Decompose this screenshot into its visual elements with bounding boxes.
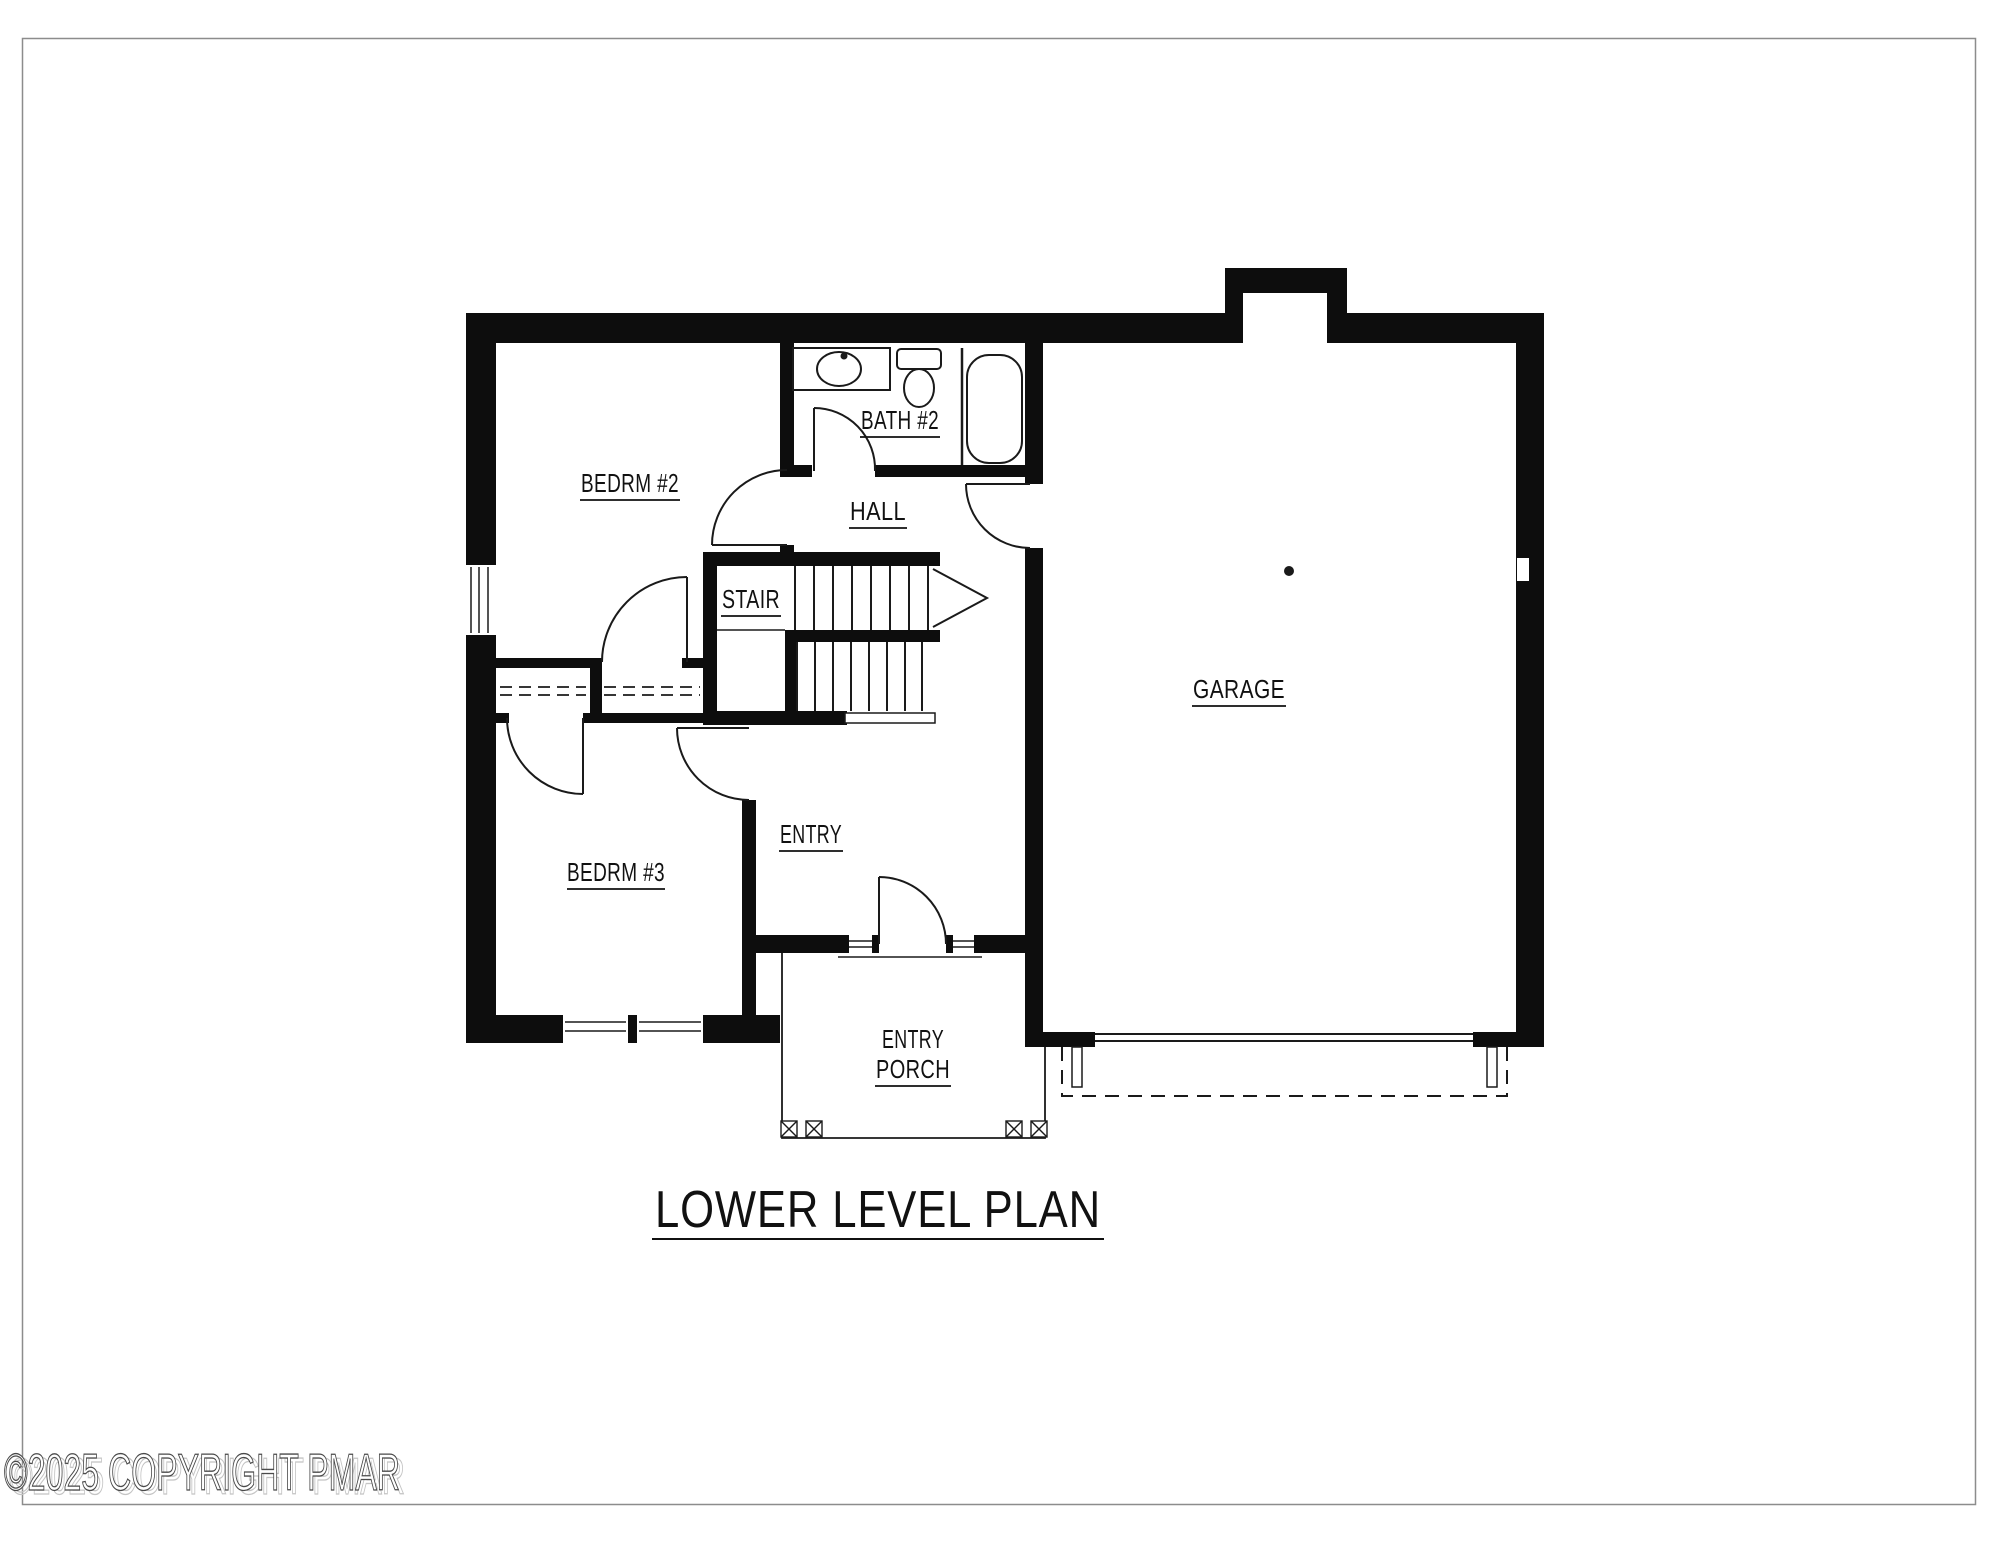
page-frame-border (23, 39, 1976, 1505)
room-label-hall: HALL (850, 496, 906, 526)
floor-plan-page: BEDRM #2 BATH #2 HALL STAIR GARAGE BEDRM… (0, 0, 2000, 1545)
wall-stair-top (703, 552, 940, 566)
wall-top-exterior (466, 313, 1544, 343)
wall-garage-left-upper (1025, 343, 1043, 484)
wall-bedrm2-bath (780, 343, 794, 470)
room-label-bath2: BATH #2 (861, 405, 939, 435)
garage-door-track (1487, 1047, 1497, 1087)
room-label-garage: GARAGE (1193, 674, 1285, 704)
wall-stair-mid-divider (785, 630, 940, 642)
wall-bedrm3-entry-divider (742, 800, 756, 1015)
wall-openings (464, 293, 1529, 1043)
bathtub-shape (967, 355, 1022, 463)
jamb-post (946, 935, 953, 953)
porch-post (1006, 1121, 1022, 1137)
door-bedrm3 (677, 728, 749, 800)
porch-post (1031, 1121, 1047, 1137)
bumpout-recess (1243, 293, 1327, 349)
wall-garage-bottom-left-stub (1043, 1032, 1095, 1047)
door-garage (966, 484, 1030, 548)
room-label-bedrm2: BEDRM #2 (581, 468, 679, 498)
copyright-text: ©2025 COPYRIGHT PMAR (4, 1444, 400, 1502)
wall-garage-bottom-right-stub (1473, 1032, 1544, 1047)
bedrm3-window-mullion (628, 1015, 637, 1043)
porch-posts (781, 1121, 1047, 1137)
garage-door (1062, 1034, 1507, 1096)
wall-right-exterior (1516, 313, 1544, 1047)
wall-closet-divider (590, 658, 602, 723)
wall-stair-left (703, 552, 717, 725)
room-label-bedrm3: BEDRM #3 (567, 857, 665, 887)
floor-plan-drawing: BEDRM #2 BATH #2 HALL STAIR GARAGE BEDRM… (0, 0, 2000, 1545)
wall-bedrm2-hall-post (780, 545, 794, 553)
wall-stair-bottom (703, 711, 847, 725)
walls (466, 268, 1544, 1047)
room-label-entry: ENTRY (780, 819, 842, 849)
door-bedrm3-closet (507, 718, 583, 794)
garage-floor-drain-dot (1284, 566, 1294, 576)
wall-left-exterior (466, 313, 496, 1043)
wall-closet-top-left (496, 658, 593, 668)
copyright-notice: ©2025 COPYRIGHT PMAR ©2025 COPYRIGHT PMA… (4, 1444, 405, 1506)
sink-shape (817, 352, 861, 386)
stair-bottom-tread-strip (845, 713, 935, 723)
sheet-title: LOWER LEVEL PLAN (652, 1181, 1104, 1239)
wall-garage-left-lower (1025, 548, 1043, 1047)
wall-entry-front-right (981, 935, 1025, 953)
jamb-post (842, 935, 849, 953)
toilet-bowl-shape (904, 369, 934, 407)
wall-stair-flight-bar (785, 630, 797, 713)
wall-entry-front-left (756, 935, 842, 953)
stair-direction-arrow (933, 569, 987, 627)
jamb-post (872, 935, 879, 953)
jamb-post (974, 935, 981, 953)
wall-bath-bottom-right (875, 465, 1025, 477)
plan-title-text: LOWER LEVEL PLAN (655, 1181, 1101, 1239)
door-bedrm2 (712, 470, 787, 545)
room-label-entry-porch-line2: PORCH (876, 1054, 950, 1084)
porch-post (806, 1121, 822, 1137)
garage-door-track (1072, 1047, 1082, 1087)
sink-faucet-dot (842, 354, 847, 359)
room-label-entry-porch-line1: ENTRY (882, 1024, 944, 1054)
room-label-stair: STAIR (722, 584, 780, 614)
entry-window-left (849, 935, 872, 953)
porch-post (781, 1121, 797, 1137)
door-bedrm2-closet (602, 577, 687, 662)
toilet-tank-shape (897, 349, 941, 369)
garage-right-window (1517, 558, 1529, 581)
wall-closet-bottom-right (583, 713, 717, 723)
room-labels: BEDRM #2 BATH #2 HALL STAIR GARAGE BEDRM… (567, 405, 1286, 1086)
bedrm2-left-window (464, 565, 497, 635)
garage-apron-dashed-outline (1062, 1047, 1507, 1096)
entry-window-right (953, 935, 974, 953)
door-entry (879, 877, 946, 944)
